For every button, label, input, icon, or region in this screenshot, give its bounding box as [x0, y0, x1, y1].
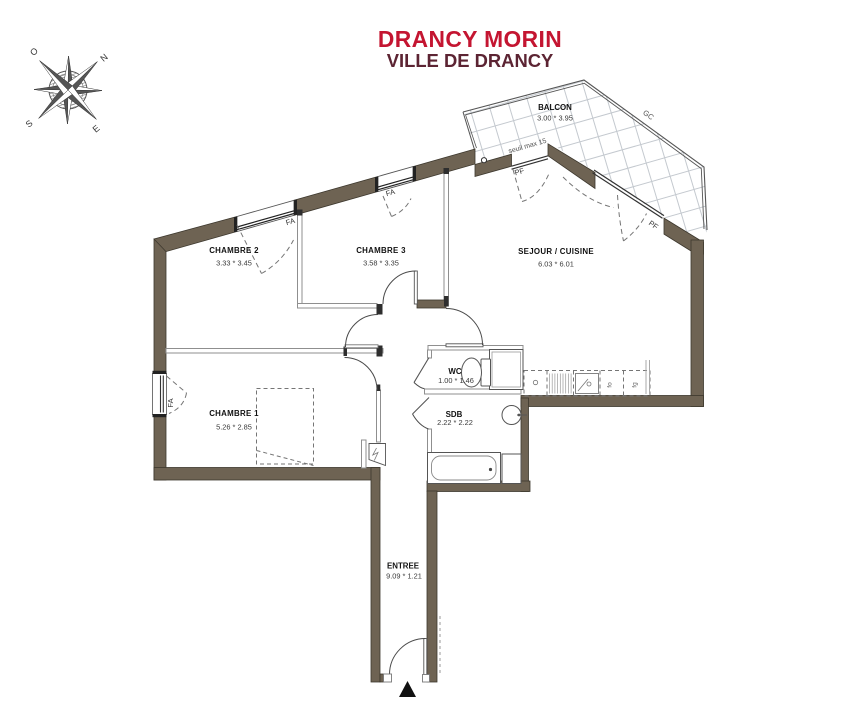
svg-text:CHAMBRE 1: CHAMBRE 1 — [209, 409, 259, 418]
svg-text:CHAMBRE 3: CHAMBRE 3 — [356, 246, 406, 255]
svg-text:3.33 * 3.45: 3.33 * 3.45 — [216, 259, 252, 268]
svg-text:SEJOUR / CUISINE: SEJOUR / CUISINE — [518, 247, 594, 256]
svg-text:fg: fg — [632, 382, 639, 388]
svg-text:BALCON: BALCON — [538, 103, 572, 112]
svg-text:6.03 * 6.01: 6.03 * 6.01 — [538, 260, 574, 269]
svg-text:fo: fo — [607, 382, 614, 388]
svg-text:CHAMBRE 2: CHAMBRE 2 — [209, 246, 259, 255]
svg-text:FA: FA — [166, 398, 175, 407]
svg-text:WC: WC — [448, 367, 461, 376]
svg-text:3.58 * 3.35: 3.58 * 3.35 — [363, 259, 399, 268]
svg-text:2.22 * 2.22: 2.22 * 2.22 — [437, 418, 473, 427]
svg-text:VILLE DE DRANCY: VILLE DE DRANCY — [387, 50, 554, 71]
svg-text:9.09 * 1.21: 9.09 * 1.21 — [386, 572, 422, 581]
svg-text:3.00 * 3.95: 3.00 * 3.95 — [537, 114, 573, 123]
svg-text:5.26 * 2.85: 5.26 * 2.85 — [216, 423, 252, 432]
svg-text:ENTREE: ENTREE — [387, 562, 419, 571]
svg-text:DRANCY MORIN: DRANCY MORIN — [378, 26, 562, 52]
svg-text:1.00 * 1.46: 1.00 * 1.46 — [438, 376, 474, 385]
